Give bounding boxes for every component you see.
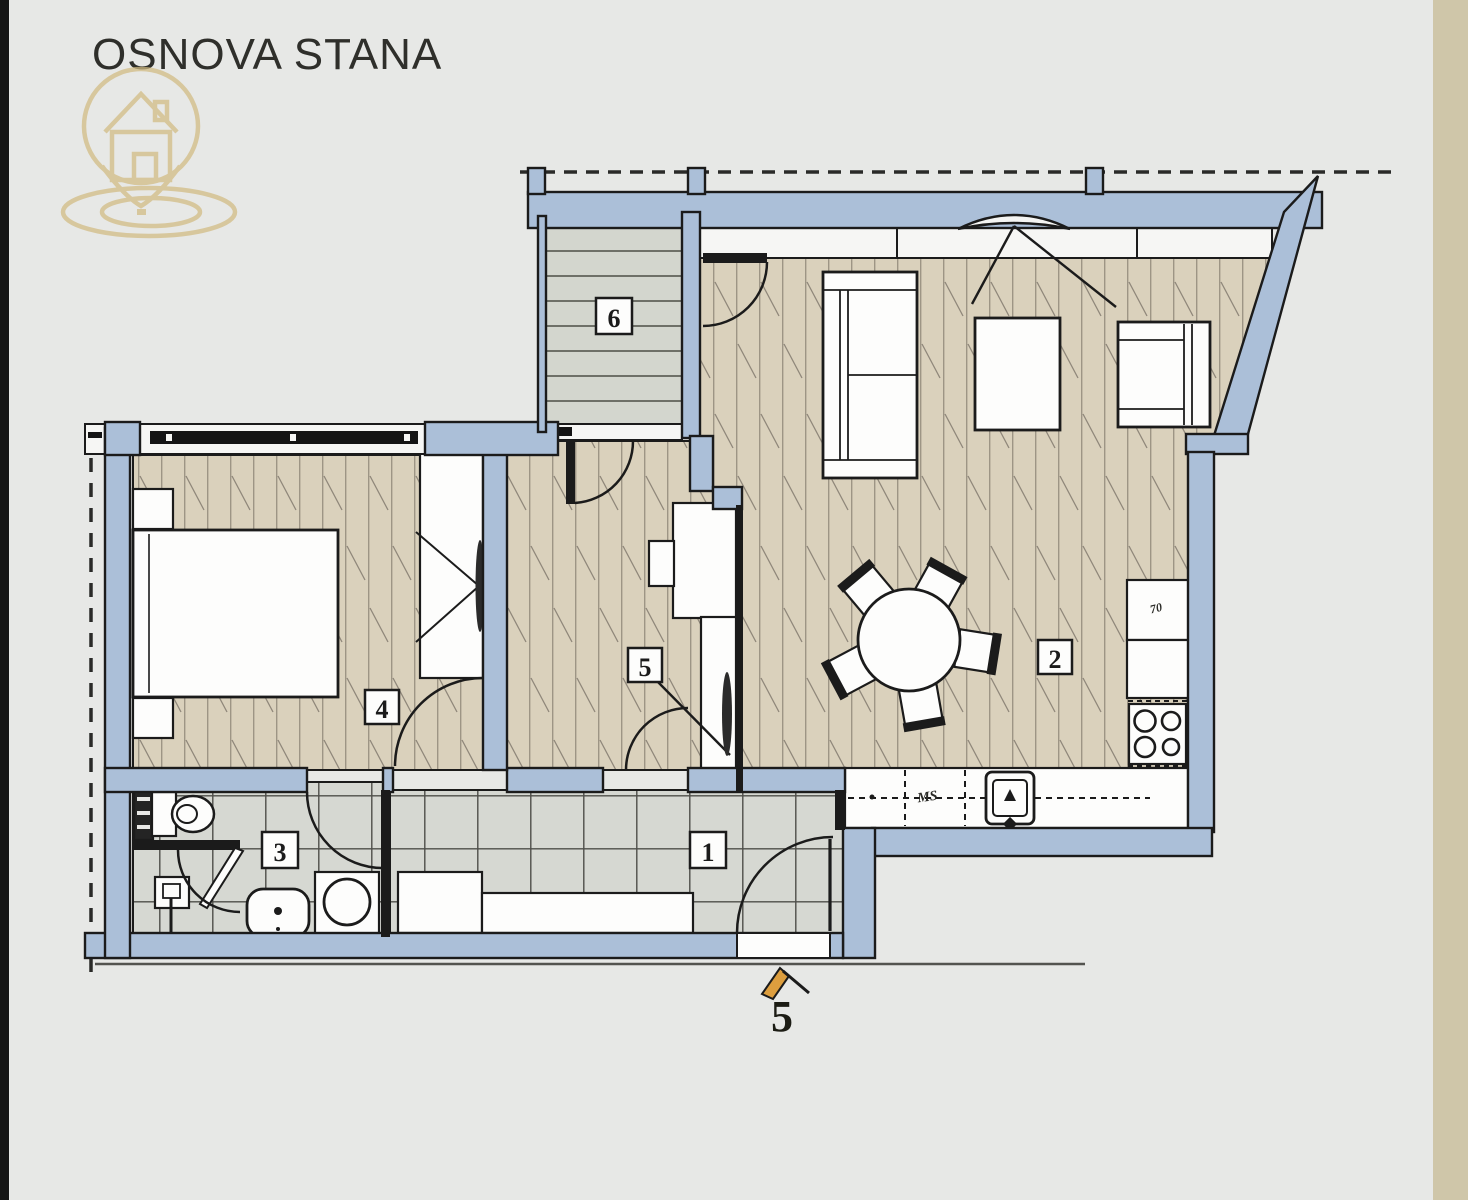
- room-label-2: 2: [1038, 640, 1072, 674]
- entrance-marker: 5: [762, 968, 809, 1041]
- wall-stub: [528, 168, 545, 194]
- side-window: [85, 424, 105, 454]
- bathroom-partition: [133, 840, 240, 850]
- wall-stub: [1086, 168, 1103, 194]
- nightstand: [133, 489, 173, 529]
- nightstand: [133, 698, 173, 738]
- side-table: [649, 541, 674, 586]
- floor-plan: 1 2 3 4 5 6 MS 70: [0, 0, 1468, 1200]
- bathroom-sink: [247, 889, 309, 937]
- room-label-4: 4: [365, 690, 399, 724]
- dishwasher-label: MS: [915, 789, 938, 807]
- svg-text:2: 2: [1049, 645, 1062, 674]
- dining-table: [858, 589, 960, 691]
- armchair: [1118, 322, 1210, 427]
- svg-text:4: 4: [376, 695, 389, 724]
- sofa: [823, 272, 917, 478]
- desk: [673, 503, 736, 618]
- page-edge-right: [1433, 0, 1468, 1200]
- room-label-5: 5: [628, 648, 662, 682]
- kitchen-sink: [986, 772, 1034, 831]
- svg-text:5: 5: [639, 653, 652, 682]
- coffee-table: [975, 318, 1060, 430]
- room-label-1: 1: [690, 832, 726, 868]
- entrance-threshold: [737, 933, 830, 958]
- living-window-band: [700, 226, 1272, 258]
- page: OSNOVA STANA: [0, 0, 1468, 1200]
- room-label-6: 6: [596, 298, 632, 334]
- svg-text:3: 3: [274, 838, 287, 867]
- svg-text:6: 6: [608, 304, 621, 333]
- double-bed: [133, 530, 338, 697]
- washing-machine: [315, 872, 379, 934]
- bedroom-wardrobe: [420, 452, 483, 678]
- entrance-number: 5: [771, 992, 793, 1041]
- kitchen-counter-side: [1127, 640, 1189, 698]
- wardrobe-door-leaf: [722, 672, 732, 756]
- stove: [1129, 704, 1186, 764]
- dining-chair: [954, 627, 1002, 675]
- svg-text:1: 1: [702, 838, 715, 867]
- toilet: [152, 792, 214, 836]
- room-label-3: 3: [262, 832, 298, 868]
- page-edge-left: [0, 0, 9, 1200]
- living-terrace-door-leaf: [703, 253, 767, 263]
- wall-stub: [688, 168, 705, 194]
- terrace-door-leaf: [566, 440, 575, 504]
